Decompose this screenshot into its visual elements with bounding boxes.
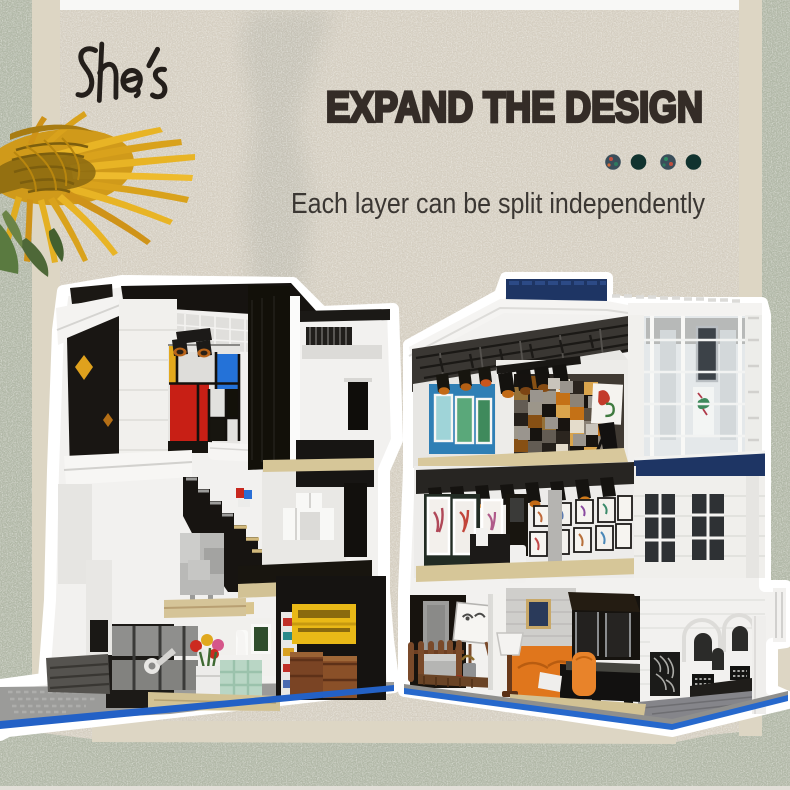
svg-text:Each layer can be split indepe: Each layer can be split independently — [291, 188, 706, 220]
svg-text:EXPAND THE DESIGN: EXPAND THE DESIGN — [326, 84, 703, 132]
